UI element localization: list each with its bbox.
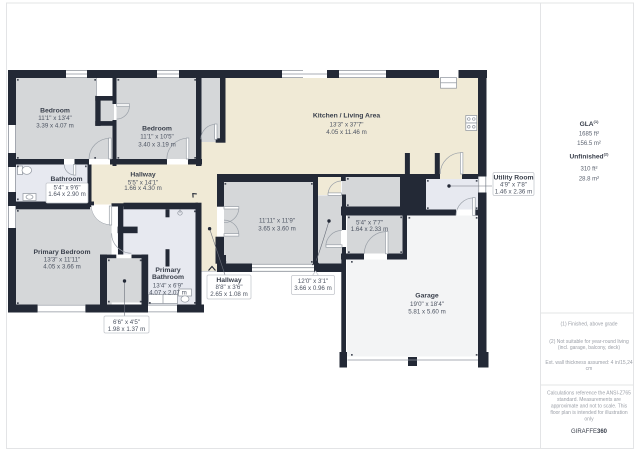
svg-text:4.07 x 2.07 m: 4.07 x 2.07 m (149, 290, 187, 297)
svg-text:13'4" x 6'9": 13'4" x 6'9" (153, 283, 184, 290)
svg-text:Primary Bedroom: Primary Bedroom (33, 249, 90, 256)
svg-text:1.66 x 4.30 m: 1.66 x 4.30 m (124, 185, 162, 192)
svg-text:4.05 x 3.66 m: 4.05 x 3.66 m (43, 264, 81, 271)
svg-text:cm: cm (586, 366, 593, 372)
svg-text:6'6" x 4'5": 6'6" x 4'5" (113, 319, 140, 326)
svg-text:1.64 x 2.90 m: 1.64 x 2.90 m (48, 191, 86, 198)
svg-text:(incl. garage, balcony, deck): (incl. garage, balcony, deck) (558, 345, 620, 351)
svg-text:floor plan is intended for ill: floor plan is intended for illustration (550, 410, 627, 416)
svg-text:3.40 x 3.19 m: 3.40 x 3.19 m (138, 142, 176, 149)
svg-text:310 ft²: 310 ft² (580, 167, 597, 173)
svg-text:Bathroom: Bathroom (50, 176, 82, 183)
svg-text:Unfinished(2): Unfinished(2) (570, 152, 610, 161)
svg-text:Bedroom: Bedroom (142, 126, 172, 133)
svg-text:11'1" x 10'5": 11'1" x 10'5" (140, 134, 173, 141)
svg-text:3.39 x 4.07 m: 3.39 x 4.07 m (36, 123, 74, 130)
svg-text:4.05 x 11.46 m: 4.05 x 11.46 m (326, 129, 366, 136)
svg-text:19'0" x 18'4": 19'0" x 18'4" (410, 301, 444, 308)
svg-text:8'8" x 3'6": 8'8" x 3'6" (215, 284, 242, 291)
svg-text:Bathroom: Bathroom (152, 274, 184, 281)
svg-text:Bedroom: Bedroom (40, 108, 70, 115)
svg-text:Hallway: Hallway (216, 277, 242, 284)
svg-text:Kitchen / Living Area: Kitchen / Living Area (313, 113, 381, 120)
svg-text:11'1" x 13'4": 11'1" x 13'4" (38, 115, 71, 122)
svg-text:2.65 x 1.08 m: 2.65 x 1.08 m (210, 291, 248, 298)
svg-text:approximate and not to scale.: approximate and not to scale. This (551, 404, 628, 410)
svg-text:11'11" x 11'9": 11'11" x 11'9" (259, 218, 295, 225)
svg-text:Primary: Primary (155, 267, 181, 274)
svg-text:standard. Measurements are: standard. Measurements are (557, 397, 621, 403)
svg-text:Calculations reference the ANS: Calculations reference the ANSI-Z765 (547, 391, 631, 397)
svg-text:13'3" x 11'11": 13'3" x 11'11" (44, 257, 80, 264)
svg-text:(1) Finished, above grade: (1) Finished, above grade (561, 322, 618, 328)
svg-text:Utility Room: Utility Room (493, 175, 533, 182)
svg-text:12'0" x 3'1": 12'0" x 3'1" (298, 278, 329, 285)
svg-text:3.65 x 3.60 m: 3.65 x 3.60 m (258, 226, 296, 233)
svg-text:Garage: Garage (415, 293, 439, 300)
svg-text:13'3" x 37'7": 13'3" x 37'7" (330, 122, 364, 129)
svg-text:1685 ft²: 1685 ft² (579, 132, 599, 138)
svg-text:1.98 x 1.37 m: 1.98 x 1.37 m (108, 326, 146, 333)
svg-text:1.46 x 2.36 m: 1.46 x 2.36 m (495, 188, 533, 195)
svg-text:only: only (584, 417, 594, 423)
svg-text:Hallway: Hallway (130, 172, 156, 179)
svg-text:156.5 m²: 156.5 m² (577, 141, 601, 147)
svg-text:5.81 x 5.60 m: 5.81 x 5.60 m (408, 309, 446, 316)
svg-text:28.8 m²: 28.8 m² (579, 177, 599, 183)
svg-text:3.66 x 0.96 m: 3.66 x 0.96 m (294, 285, 332, 292)
svg-text:GIRAFFE360: GIRAFFE360 (571, 429, 608, 435)
svg-text:1.64 x 2.33 m: 1.64 x 2.33 m (351, 226, 389, 233)
